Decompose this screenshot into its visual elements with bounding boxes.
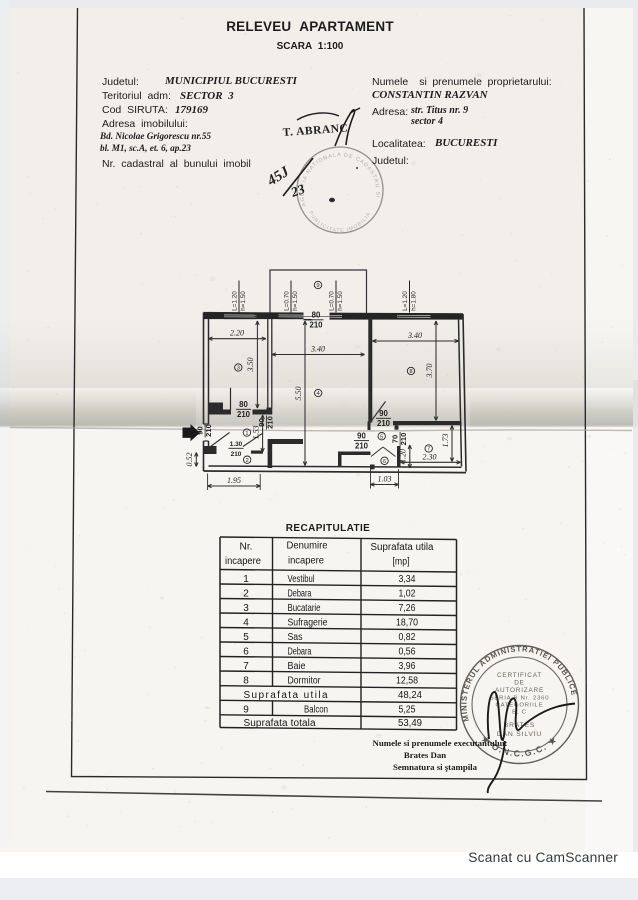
svg-text:DE: DE [514,680,524,687]
svg-text:B, C: B, C [512,710,527,716]
svg-text:CATEGORIILE: CATEGORIILE [496,703,544,709]
svg-text:AUTORIZARE: AUTORIZARE [495,687,544,694]
svg-text:BRATES: BRATES [504,722,536,729]
svg-text:CERTIFICAT: CERTIFICAT [497,672,542,679]
